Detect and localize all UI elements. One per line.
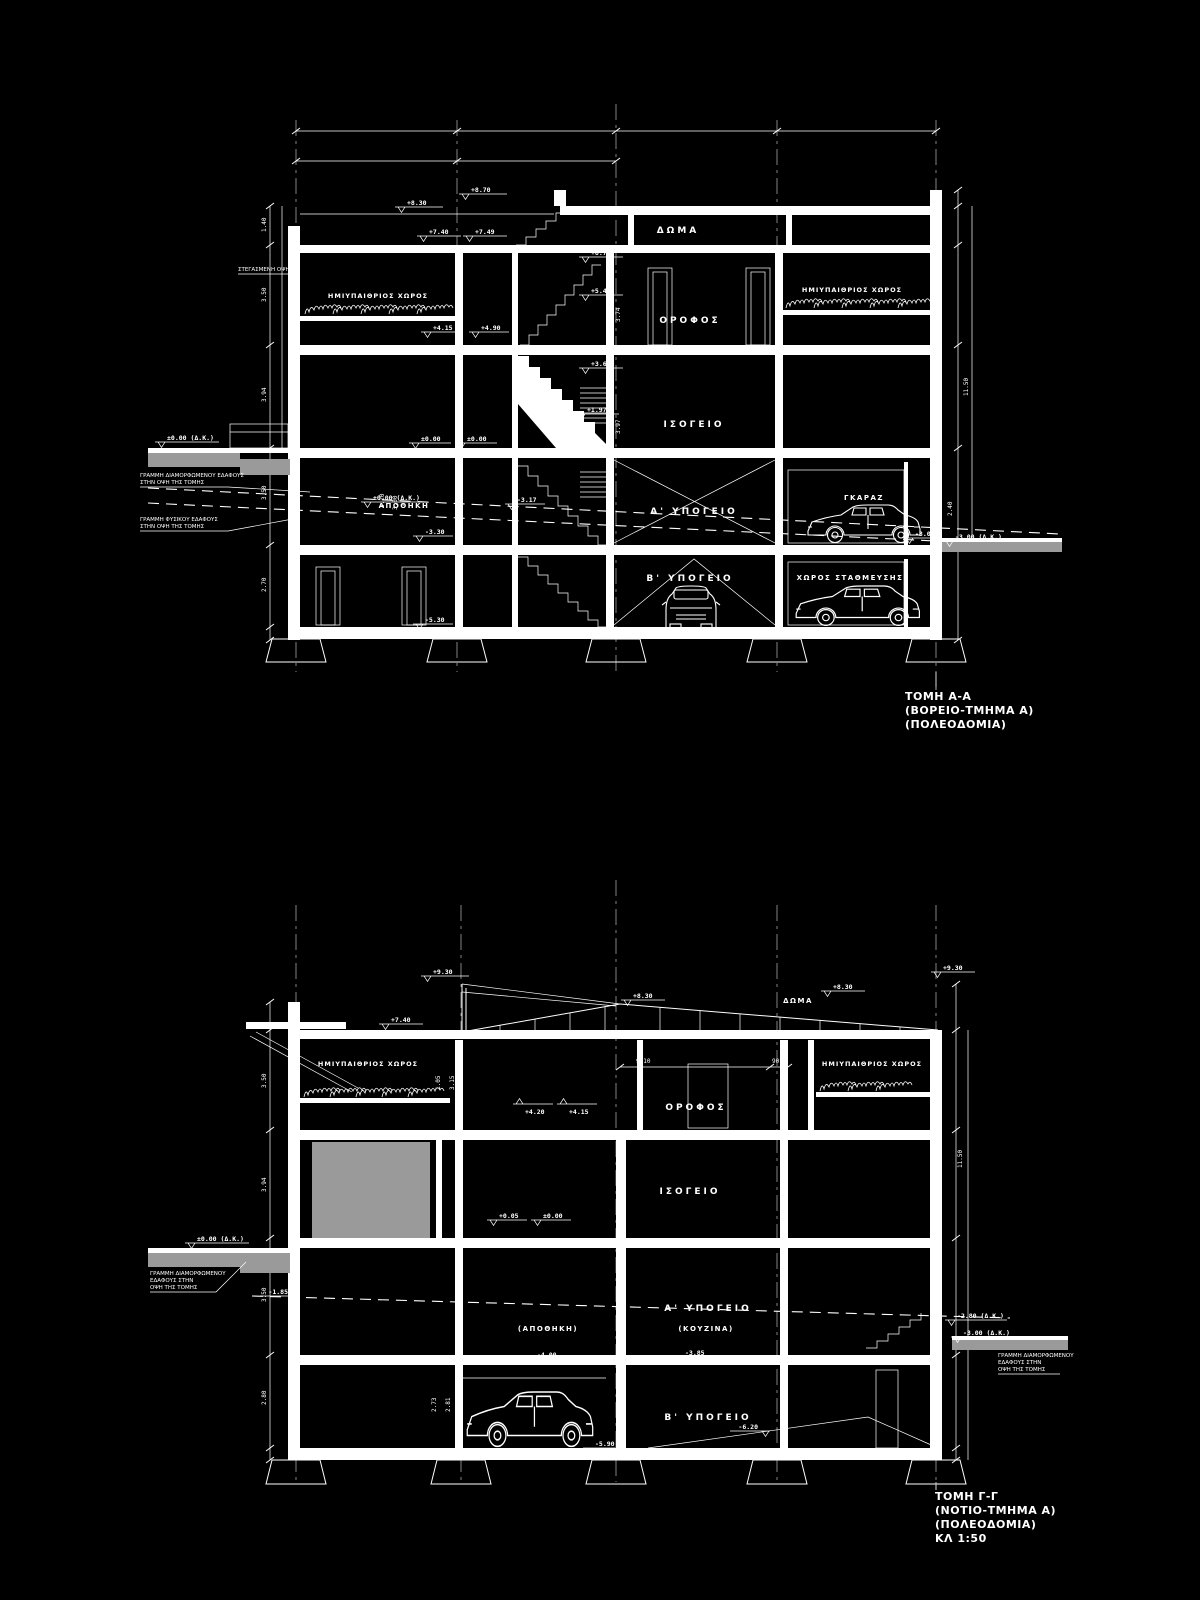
annotation-ground-left: ΟΨΗ ΤΗΣ ΤΟΜΗΣ	[150, 1285, 198, 1291]
section-c-title: ΤΟΜΗ Γ-Γ	[935, 1490, 998, 1503]
room-label-ypogeio-a: Α' ΥΠΟΓΕΙΟ	[650, 507, 737, 517]
planted-roof-right	[783, 299, 934, 315]
svg-text:±0.00: ±0.00	[421, 435, 441, 443]
dim-label: 3.50	[261, 1287, 268, 1302]
elevation-marker: ±0.00	[531, 1212, 571, 1226]
section-c-drawing: 3.50 3.94 3.50 2.80 11.50 1.05 3.15 2.73…	[148, 880, 1074, 1545]
svg-text:-3.85: -3.85	[685, 1349, 705, 1357]
annotation-ground-right: ΕΔΑΦΟΥΣ ΣΤΗΝ	[998, 1360, 1041, 1366]
elevation-marker: -6.20	[730, 1423, 770, 1437]
room-label-doma: ΔΩΜΑ	[783, 997, 813, 1005]
room-label-kouzina: (ΚΟΥΖΙΝΑ)	[678, 1325, 733, 1333]
svg-text:+4.20: +4.20	[525, 1108, 545, 1116]
elevation-marker: -3.17	[505, 496, 545, 510]
svg-text:+9.30: +9.30	[433, 968, 453, 976]
svg-text:-5.90: -5.90	[595, 1440, 615, 1448]
svg-text:-3.00 (Δ.Κ.): -3.00 (Δ.Κ.)	[963, 1329, 1010, 1337]
svg-text:+3.66: +3.66	[591, 360, 611, 368]
elevation-marker: +7.49	[463, 228, 507, 242]
elevation-marker: +4.90	[469, 324, 509, 338]
svg-text:±0.00: ±0.00	[543, 1212, 563, 1220]
room-label-garage: ΓΚΑΡΑΖ	[844, 494, 884, 502]
elevation-marker: -3.30	[413, 528, 453, 542]
dim-label: 2.73	[431, 1397, 438, 1412]
annotation-ground-left: ΕΔΑΦΟΥΣ ΣΤΗΝ	[150, 1278, 193, 1284]
planted-roof-left	[300, 305, 455, 321]
svg-text:+8.30: +8.30	[633, 992, 653, 1000]
room-label-ypogeio-b: Β' ΥΠΟΓΕΙΟ	[664, 1413, 751, 1423]
svg-text:+4.15: +4.15	[433, 324, 453, 332]
section-c-subtitle: (ΝΟΤΙΟ-ΤΜΗΜΑ Α)	[935, 1504, 1056, 1517]
svg-text:+7.49: +7.49	[475, 228, 495, 236]
section-a-subtitle2: (ΠΟΛΕΟΔΟΜΙΑ)	[905, 718, 1006, 731]
room-label-ypogeio-a: Α' ΥΠΟΓΕΙΟ	[664, 1304, 751, 1314]
svg-text:-1.85: -1.85	[268, 1288, 288, 1296]
car-side-view	[467, 1392, 592, 1446]
room-label-semi-open-left: ΗΜΙΥΠΑΙΘΡΙΟΣ ΧΩΡΟΣ	[318, 1060, 418, 1068]
dim-label: 11.50	[957, 1150, 964, 1168]
elevation-marker: +4.20	[513, 1099, 553, 1117]
car-side-view	[808, 505, 920, 543]
room-label-semi-open-left: ΗΜΙΥΠΑΙΘΡΙΟΣ ΧΩΡΟΣ	[328, 292, 428, 300]
dim-label: 3.50	[261, 485, 268, 500]
dim-label: 2.70	[261, 577, 268, 592]
section-a-title: ΤΟΜΗ Α-Α	[905, 690, 971, 703]
dim-label: 3.74	[615, 307, 622, 322]
svg-text:+8.30: +8.30	[833, 983, 853, 991]
staircase	[516, 213, 606, 627]
svg-text:±0.00 (Δ.Κ.): ±0.00 (Δ.Κ.)	[373, 494, 420, 502]
svg-text:-3.00 (Δ.Κ.): -3.00 (Δ.Κ.)	[955, 533, 1002, 541]
svg-text:+5.49: +5.49	[591, 287, 611, 295]
title-block-a: ΤΟΜΗ Α-Α (ΒΟΡΕΙΟ-ΤΜΗΜΑ Α) (ΠΟΛΕΟΔΟΜΙΑ)	[905, 672, 1034, 731]
room-label-isogeio: ΙΣΟΓΕΙΟ	[663, 420, 724, 430]
dim-label: 1.40	[261, 217, 268, 232]
elevation-marker: +3.66	[579, 360, 623, 374]
room-label-apothiki: ΑΠΟΘΗΚΗ	[379, 502, 430, 510]
svg-text:±0.00 (Δ.Κ.): ±0.00 (Δ.Κ.)	[197, 1235, 244, 1243]
grid-axes	[296, 104, 936, 690]
svg-text:±0.00 (Δ.Κ.): ±0.00 (Δ.Κ.)	[167, 434, 214, 442]
elevation-marker: +9.30	[931, 964, 975, 978]
roof-structure	[246, 984, 942, 1039]
annotation-natural-ground: ΣΤΗΝ ΟΨΗ ΤΗΣ ΤΟΜΗΣ	[140, 524, 205, 530]
dim-label: 3.15	[449, 1075, 456, 1090]
room-label-doma: ΔΩΜΑ	[657, 226, 700, 236]
svg-text:+4.90: +4.90	[481, 324, 501, 332]
dim-label: 2.81	[445, 1397, 452, 1412]
svg-text:+7.40: +7.40	[429, 228, 449, 236]
room-label-orofos: ΟΡΟΦΟΣ	[665, 1103, 726, 1113]
svg-text:-3.17: -3.17	[517, 496, 537, 504]
annotation-ground-right: ΟΨΗ ΤΗΣ ΤΟΜΗΣ	[998, 1367, 1046, 1373]
dim-label: 3.50	[261, 1073, 268, 1088]
svg-text:±0.00: ±0.00	[467, 435, 487, 443]
vehicles	[662, 505, 920, 628]
dim-label: 90	[772, 1058, 780, 1065]
svg-text:-4.00: -4.00	[537, 1351, 557, 1359]
annotation-covered-facade: ΣΤΕΓΑΣΜΕΝΗ ΟΨΗ	[238, 267, 290, 273]
dim-label: 3.50	[261, 287, 268, 302]
elevation-marker: +8.30	[395, 199, 443, 213]
elevation-marker: +5.49	[579, 287, 623, 301]
room-label-isogeio: ΙΣΟΓΕΙΟ	[659, 1187, 720, 1197]
dim-label: 3.94	[261, 1177, 268, 1192]
dim-label: 2.80	[261, 1390, 268, 1405]
elevation-marker: +4.15	[557, 1099, 597, 1117]
svg-text:-6.20: -6.20	[738, 1423, 758, 1431]
section-c-subtitle2: (ΠΟΛΕΟΔΟΜΙΑ)	[935, 1518, 1036, 1531]
dim-label: 3.94	[261, 387, 268, 402]
elevation-marker: +7.40	[379, 1016, 423, 1030]
svg-text:+8.30: +8.30	[407, 199, 427, 207]
svg-text:-3.30: -3.30	[425, 528, 445, 536]
svg-text:+4.15: +4.15	[569, 1108, 589, 1116]
room-label-semi-open-right: ΗΜΙΥΠΑΙΘΡΙΟΣ ΧΩΡΟΣ	[802, 286, 902, 294]
elevation-marker: ±0.00	[409, 435, 451, 449]
elevation-marker: +0.05	[487, 1212, 527, 1226]
dimension-chains: 1.40 3.50 3.94 3.50 2.70 11.50 2.40 3.74…	[261, 128, 972, 643]
vehicles	[467, 1392, 592, 1446]
annotation-ground-left: ΓΡΑΜΜΗ ΔΙΑΜΟΡΦΩΜΕΝΟΥ	[150, 1271, 226, 1277]
elevation-marker: -2.80 (Δ.Κ.)	[945, 1312, 1007, 1326]
elevation-marker: ±0.00 (Δ.Κ.)	[155, 434, 219, 448]
room-label-ypogeio-b: Β' ΥΠΟΓΕΙΟ	[646, 574, 733, 584]
elevation-marker: ±0.00 (Δ.Κ.)	[185, 1235, 249, 1249]
elevation-marker: +9.30	[421, 968, 469, 982]
elevation-marker: +7.40	[417, 228, 461, 242]
svg-text:+8.70: +8.70	[471, 186, 491, 194]
room-label-apothiki: (ΑΠΟΘΗΚΗ)	[518, 1325, 578, 1333]
room-label-orofos: ΟΡΟΦΟΣ	[659, 316, 720, 326]
annotation-natural-ground: ΓΡΑΜΜΗ ΦΥΣΙΚΟΥ ΕΔΑΦΟΥΣ	[140, 517, 218, 523]
svg-text:-3.00: -3.00	[915, 530, 935, 538]
annotation-ground-right: ΓΡΑΜΜΗ ΔΙΑΜΟΡΦΩΜΕΝΟΥ	[998, 1353, 1074, 1359]
annotation-formed-ground: ΓΡΑΜΜΗ ΔΙΑΜΟΡΦΩΜΕΝΟΥ ΕΔΑΦΟΥΣ	[140, 473, 244, 479]
dim-label: 2.40	[947, 501, 954, 516]
car-side-view	[796, 586, 919, 625]
bracing-lines	[614, 460, 775, 625]
car-front-view	[662, 586, 720, 628]
svg-text:-5.30: -5.30	[425, 616, 445, 624]
elevation-marker: +8.30	[621, 992, 665, 1006]
svg-text:+9.30: +9.30	[943, 964, 963, 972]
annotation-formed-ground: ΣΤΗΝ ΟΨΗ ΤΗΣ ΤΟΜΗΣ	[140, 480, 205, 486]
dim-label: 11.50	[963, 378, 970, 396]
staircase	[866, 1313, 921, 1348]
section-a-subtitle: (ΒΟΡΕΙΟ-ΤΜΗΜΑ Α)	[905, 704, 1034, 717]
room-label-semi-open-right: ΗΜΙΥΠΑΙΘΡΙΟΣ ΧΩΡΟΣ	[822, 1060, 922, 1068]
elevation-marker: +8.70	[459, 186, 507, 200]
architectural-sections-canvas: 1.40 3.50 3.94 3.50 2.70 11.50 2.40 3.74…	[0, 0, 1200, 1600]
section-c-scale: ΚΛ 1:50	[935, 1532, 987, 1545]
title-block-c: ΤΟΜΗ Γ-Γ (ΝΟΤΙΟ-ΤΜΗΜΑ Α) (ΠΟΛΕΟΔΟΜΙΑ) ΚΛ…	[935, 1482, 1056, 1545]
section-a-drawing: 1.40 3.50 3.94 3.50 2.70 11.50 2.40 3.74…	[140, 104, 1062, 731]
svg-text:+6.77: +6.77	[591, 249, 611, 257]
svg-text:+7.40: +7.40	[391, 1016, 411, 1024]
svg-text:+0.05: +0.05	[499, 1212, 519, 1220]
elevation-marker: +8.30	[821, 983, 865, 997]
drawing-sheet: 1.40 3.50 3.94 3.50 2.70 11.50 2.40 3.74…	[0, 0, 1200, 1600]
room-label-parking: ΧΩΡΟΣ ΣΤΑΘΜΕΥΣΗΣ	[797, 574, 904, 582]
svg-text:+1.97: +1.97	[587, 406, 607, 414]
dim-label: 3.97	[615, 419, 622, 434]
svg-text:-2.80 (Δ.Κ.): -2.80 (Δ.Κ.)	[957, 1312, 1004, 1320]
room-labels: ΔΩΜΑ ΟΡΟΦΟΣ ΙΣΟΓΕΙΟ Α' ΥΠΟΓΕΙΟ Β' ΥΠΟΓΕΙ…	[328, 226, 903, 584]
